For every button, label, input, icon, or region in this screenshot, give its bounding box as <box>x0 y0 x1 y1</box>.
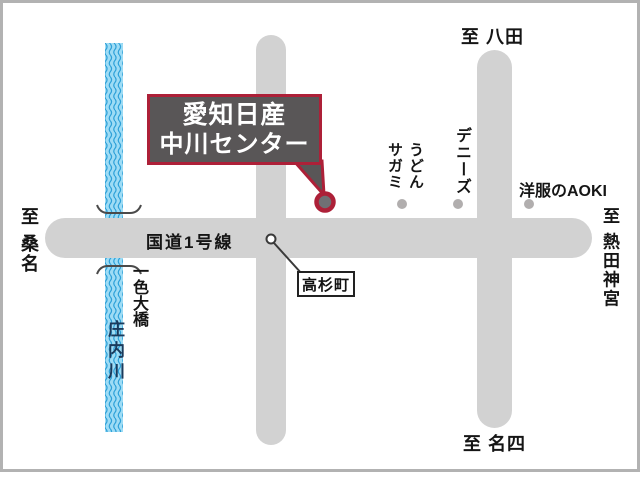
takasugi-intersection-dot <box>267 235 276 244</box>
dealer-location-marker <box>317 194 334 211</box>
udon-sagami-line2: サガミ <box>384 142 405 190</box>
dealer-callout-tail <box>294 161 324 195</box>
udon-sagami-dot <box>397 199 407 209</box>
direction-to-meishi: 至 名四 <box>463 430 526 456</box>
dealer-callout-box: 愛知日産 中川センター <box>147 94 322 165</box>
direction-to-kuwana: 至 桑名 <box>16 207 42 274</box>
takasugi-intersection-label: 高杉町 <box>297 271 355 297</box>
route1-road-label: 国道1号線 <box>146 228 233 253</box>
direction-to-atsuta-jingu: 至 熱田神宮 <box>597 207 622 309</box>
map-graphics <box>0 0 640 480</box>
isshiki-bridge-label: 一色大橋 <box>126 263 150 327</box>
dealer-name-line2: 中川センター <box>160 130 310 160</box>
udon-sagami-label: うどん サガミ <box>384 142 426 190</box>
udon-sagami-line1: うどん <box>405 142 426 190</box>
aoki-label: 洋服のAOKI <box>519 177 607 201</box>
dennys-dot <box>453 199 463 209</box>
direction-to-hatta: 至 八田 <box>461 23 524 49</box>
shonai-river-label: 庄内川 <box>102 320 127 383</box>
dealer-name-line1: 愛知日産 <box>182 100 286 130</box>
road-route1-horizontal <box>45 218 592 258</box>
dennys-label: デニーズ <box>449 127 473 195</box>
